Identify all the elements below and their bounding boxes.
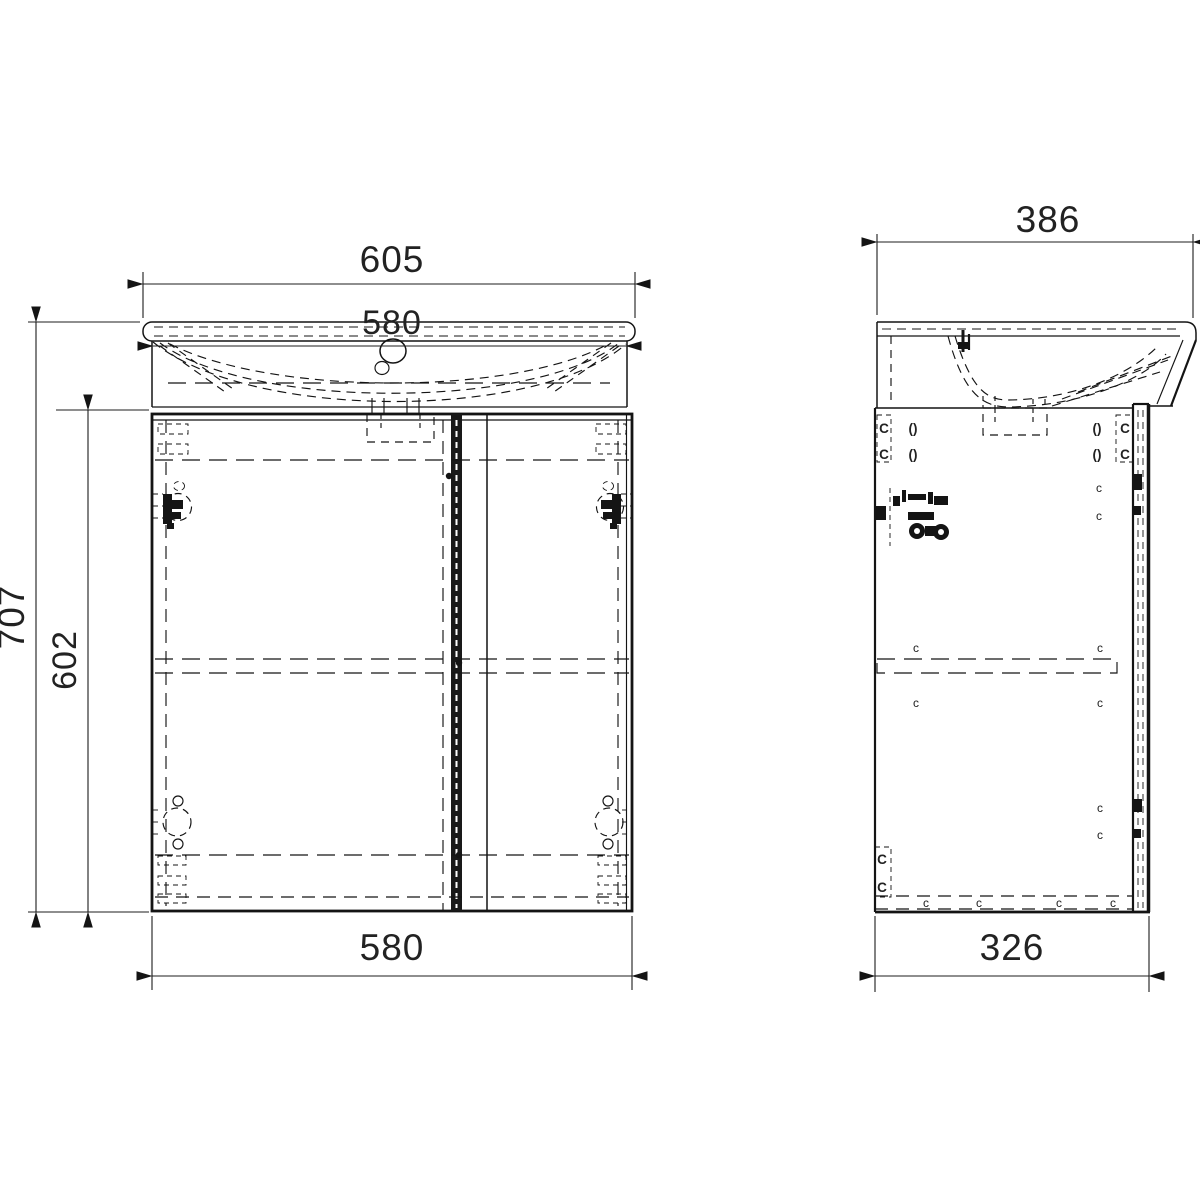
corner-fittings <box>158 424 626 903</box>
cam-mark: C <box>879 447 889 462</box>
hinge-top-right <box>597 482 632 530</box>
cam-mark: C <box>1120 447 1130 462</box>
side-shelf-hidden <box>877 659 1117 673</box>
hinge-top-left <box>153 482 192 530</box>
svg-text:c: c <box>913 696 919 710</box>
dim-label-605: 605 <box>360 239 425 280</box>
side-top-fittings: C C () () () () C C <box>877 415 1133 462</box>
dowel-mark: () <box>1093 421 1102 436</box>
siphon-cutout-front <box>367 414 434 442</box>
svg-text:c: c <box>923 896 929 910</box>
side-bottom-bracket: C C <box>875 847 891 897</box>
technical-drawing-page: 605 580 707 602 580 <box>0 0 1200 1200</box>
cam-mark: C <box>879 421 889 436</box>
cam-mark: C <box>1120 421 1130 436</box>
dim-front-basin-width: 580 <box>153 304 626 346</box>
svg-text:c: c <box>1097 696 1103 710</box>
dim-front-cabinet-width: 580 <box>152 916 632 990</box>
dowel-mark: () <box>909 421 918 436</box>
hinge-bottom-right <box>595 796 631 849</box>
dowel-mark: () <box>1093 447 1102 462</box>
svg-text:c: c <box>1096 509 1102 523</box>
side-view: C C () () () () C C <box>875 199 1196 992</box>
svg-text:c: c <box>1097 828 1103 842</box>
dim-front-cabinet-height: 602 <box>46 410 149 912</box>
front-cabinet <box>152 414 632 911</box>
svg-text:c: c <box>1056 896 1062 910</box>
side-washbasin <box>877 322 1196 408</box>
side-door-panel <box>1133 404 1149 912</box>
svg-text:c: c <box>1097 641 1103 655</box>
svg-text:c: c <box>976 896 982 910</box>
dim-side-overall-depth: 386 <box>877 199 1193 318</box>
dowel-mark: () <box>909 447 918 462</box>
svg-text:C: C <box>877 852 887 867</box>
front-view: 605 580 707 602 580 <box>0 239 635 990</box>
technical-drawing-canvas: 605 580 707 602 580 <box>0 0 1200 1200</box>
svg-text:c: c <box>1110 896 1116 910</box>
svg-text:C: C <box>877 880 887 895</box>
dim-label-580-bottom: 580 <box>360 927 425 968</box>
faucet-hole-section <box>958 330 969 352</box>
dim-label-580-top: 580 <box>362 304 422 342</box>
svg-text:c: c <box>913 641 919 655</box>
side-cabinet: C C () () () () C C <box>875 404 1150 912</box>
dim-label-326: 326 <box>980 927 1045 968</box>
svg-text:c: c <box>1097 801 1103 815</box>
side-bottom-band: c c c c <box>875 896 1133 910</box>
dim-label-602: 602 <box>46 630 84 690</box>
dim-side-cabinet-depth: 326 <box>875 916 1149 992</box>
dim-label-707: 707 <box>0 585 32 650</box>
svg-text:c: c <box>1096 481 1102 495</box>
faucet-hole <box>375 339 406 375</box>
door-centre-gap <box>443 414 487 911</box>
dim-label-386: 386 <box>1016 199 1081 240</box>
siphon-cutout-side <box>983 408 1047 435</box>
drain-outlet <box>372 398 419 413</box>
side-hinge-hardware <box>876 488 949 546</box>
hinge-bottom-left <box>153 796 191 849</box>
